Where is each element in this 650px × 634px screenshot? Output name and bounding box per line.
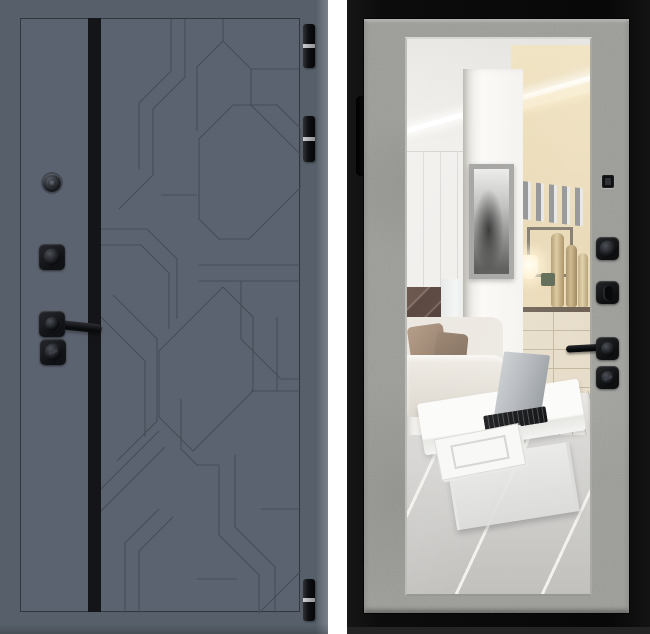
thumbturn: [596, 281, 619, 304]
metal-letter-wall-decor: [523, 181, 587, 227]
wardrobe-cabinets: [407, 151, 465, 294]
vase: [551, 233, 564, 307]
lever-handle-inner-rose: [596, 337, 619, 360]
black-accent-stripe: [88, 18, 101, 612]
door-product-image: [0, 0, 650, 634]
deadbolt-knob-ball: [44, 249, 61, 266]
deadbolt-knob: [39, 244, 65, 270]
green-box-decor: [541, 273, 555, 286]
deadbolt-knob-inner: [596, 237, 619, 260]
vase: [578, 253, 588, 307]
door-front-photo: [0, 0, 328, 634]
framed-art-print: [469, 164, 514, 279]
peephole-lens: [48, 179, 56, 187]
hinge-top: [303, 24, 315, 68]
lever-handle-inner-boss: [601, 342, 615, 356]
lever-handle-rose: [39, 311, 65, 337]
thumbturn-lever: [603, 285, 612, 300]
key-cylinder: [40, 339, 66, 365]
mirror-panel: [405, 37, 592, 596]
deadbolt-knob-inner-ball: [599, 240, 616, 257]
lever-handle-boss: [45, 317, 59, 331]
hinge-bottom: [303, 579, 315, 621]
vase: [566, 245, 577, 307]
concrete-panel: [364, 19, 629, 613]
door-front-bottom-shadow: [0, 624, 328, 634]
night-latch-knob: [596, 366, 619, 389]
door-front-panel: [20, 18, 300, 612]
geometric-milling-pattern: [101, 19, 301, 613]
peephole: [43, 174, 61, 192]
hinge-upper: [303, 116, 315, 162]
latch-cover: [602, 175, 614, 188]
magazine-cover-detail: [450, 435, 510, 469]
door-front-edge: [316, 0, 328, 634]
marble-backsplash: [407, 287, 441, 321]
door-back-photo: [347, 0, 650, 634]
